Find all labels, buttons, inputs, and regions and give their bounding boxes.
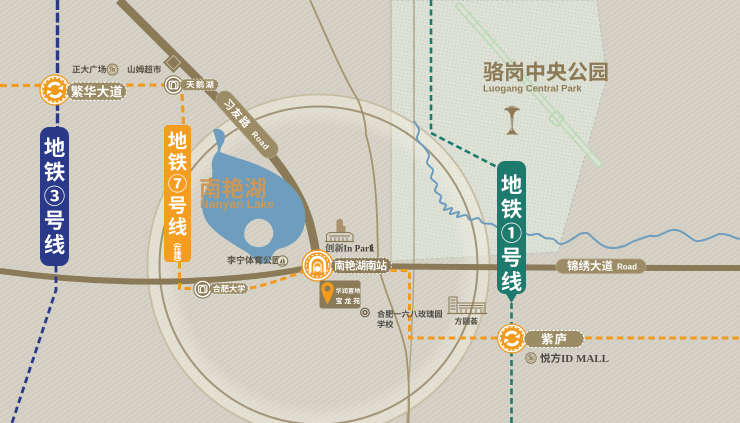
svg-text:Luogang Central Park: Luogang Central Park — [483, 84, 582, 95]
svg-text:Road: Road — [617, 263, 637, 272]
svg-text:Nanyan Lake: Nanyan Lake — [200, 197, 274, 211]
svg-text:ID MALL: ID MALL — [561, 353, 609, 365]
svg-text:In Park: In Park — [344, 245, 376, 255]
